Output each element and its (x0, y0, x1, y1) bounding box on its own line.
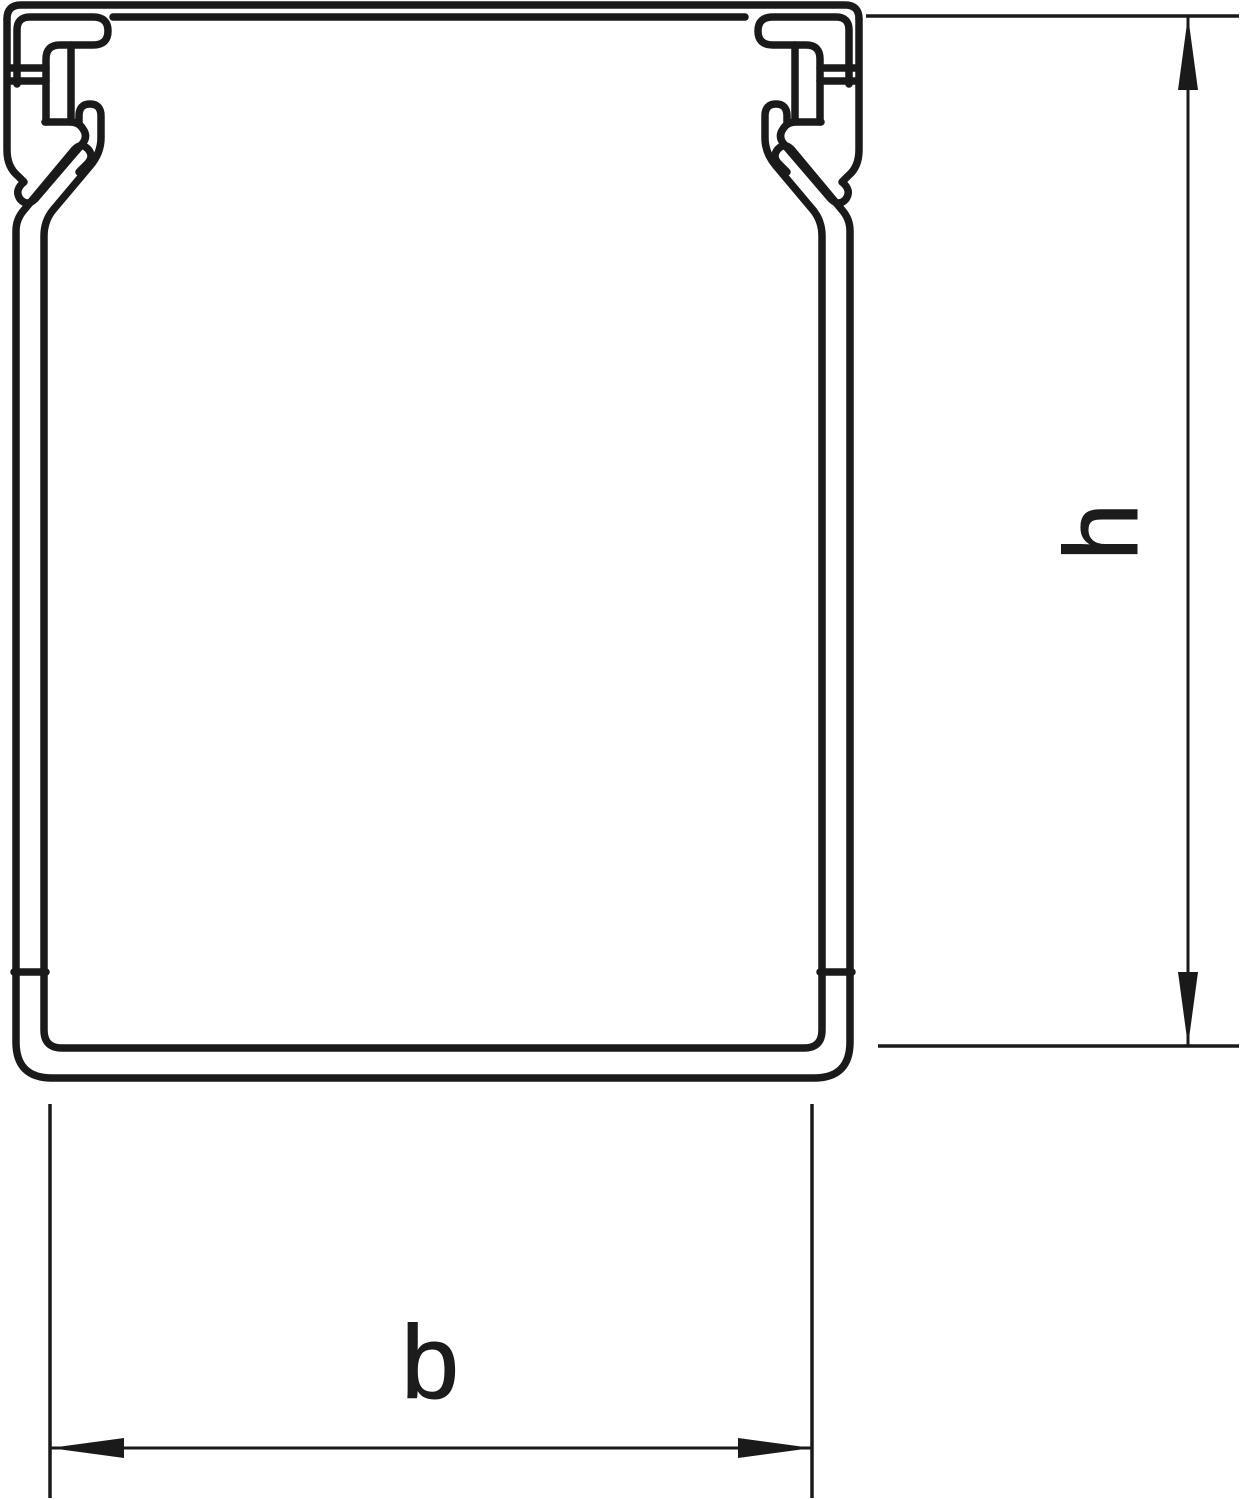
h-arrowhead-down (1178, 972, 1198, 1046)
duct-profile (7, 5, 859, 1078)
left-wall-inner (44, 104, 822, 1048)
b-arrowhead-left (50, 1438, 124, 1458)
b-dimension: b (50, 1104, 812, 1498)
dimension-label-b: b (401, 1305, 459, 1421)
duct-cross-section-drawing: h b (0, 0, 1241, 1500)
b-arrowhead-right (738, 1438, 812, 1458)
left-wall-outer (16, 146, 850, 1078)
h-arrowhead-up (1178, 16, 1198, 90)
h-dimension: h (866, 16, 1239, 1046)
dimension-label-h: h (1044, 503, 1160, 561)
drawing-canvas: h b (0, 0, 1241, 1500)
